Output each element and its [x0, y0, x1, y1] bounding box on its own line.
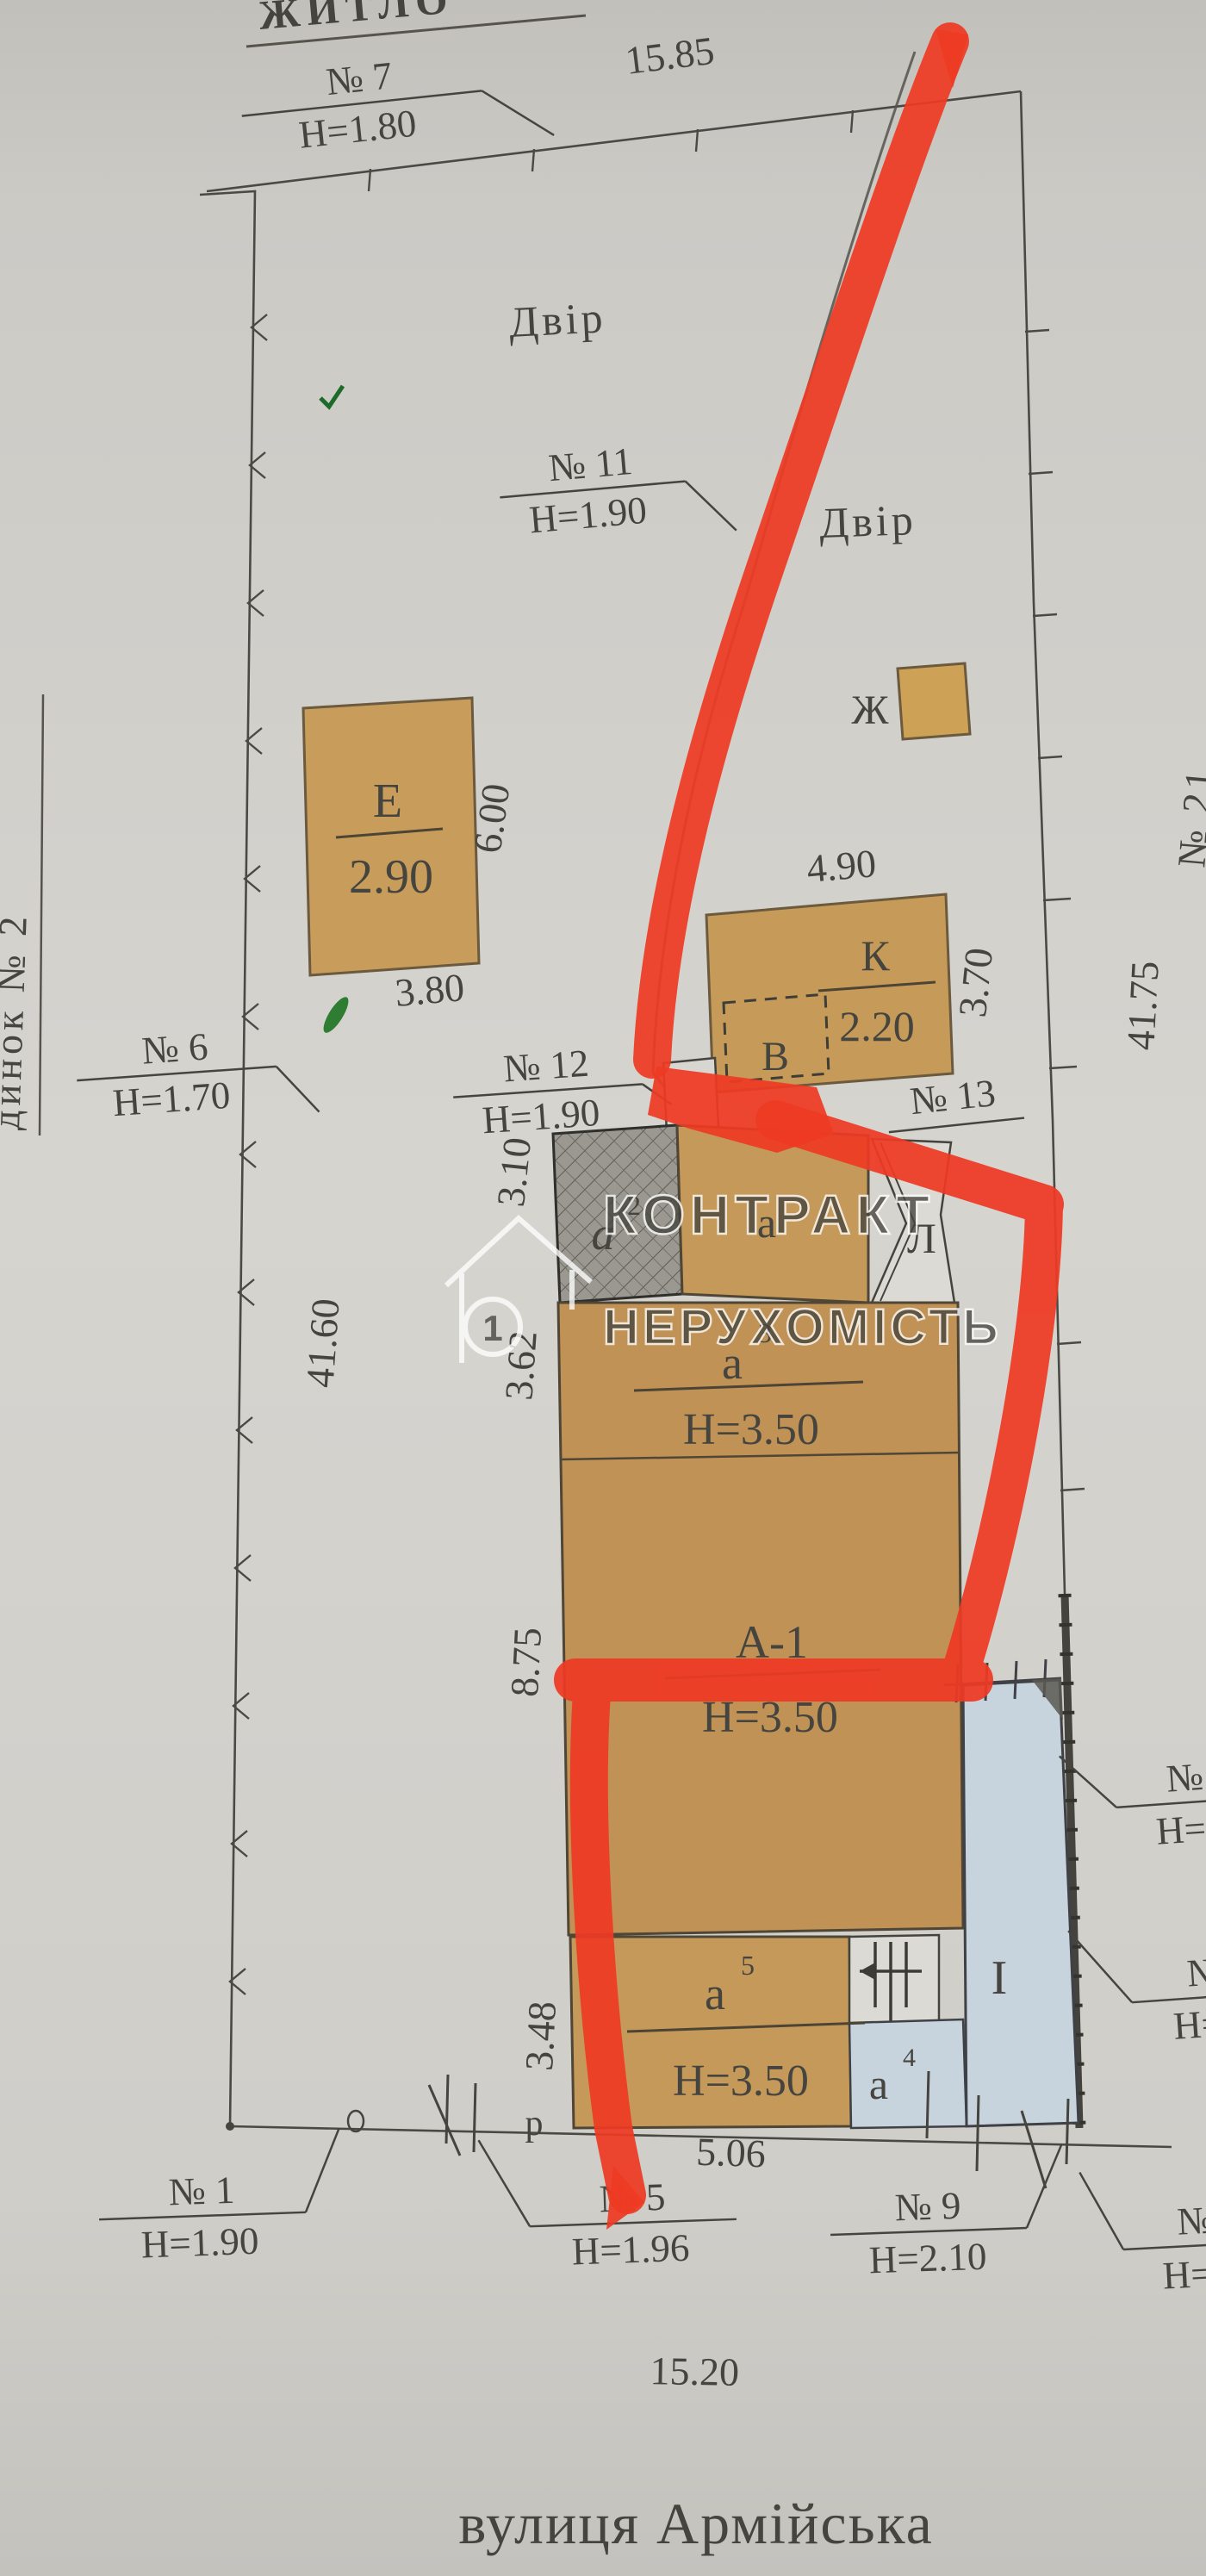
label-a5-base: а [705, 1968, 725, 2019]
label-e-value: 2.90 [349, 850, 433, 904]
dim-k-depth: 3.70 [950, 946, 1001, 1019]
fence-12-number: № 12 [502, 1042, 590, 1091]
fence-right-upper-number: № [1165, 1755, 1204, 1801]
dim-a5-depth: 3.48 [517, 2000, 564, 2072]
dim-a3-depth: 3.62 [496, 1329, 544, 1402]
fence-7-number: № 7 [324, 53, 394, 103]
label-a3-height: Н=3.50 [683, 1405, 819, 1454]
label-k-value: 2.20 [839, 1002, 915, 1050]
fence-right-upper-height: Н= [1154, 1807, 1206, 1853]
fence-11-number: № 11 [547, 439, 635, 489]
dim-right-length: 41.75 [1118, 960, 1166, 1051]
label-e: Е [373, 775, 402, 828]
watermark-line1: КОНТРАКТ [603, 1184, 935, 1246]
fence-right-mid-number: № [1185, 1950, 1206, 1995]
dim-left-length: 41.60 [297, 1297, 347, 1390]
site-plan-drawing: ЖИТЛО динок № 2 № 21 Двір Двір № 7 Н=1.8… [0, 0, 1206, 2576]
fence-5-height: Н=1.96 [571, 2226, 690, 2274]
building-a4 [849, 2019, 967, 2128]
dim-a1-depth: 8.75 [502, 1627, 550, 1698]
label-i: І [992, 1951, 1008, 2005]
building-zh [898, 663, 970, 739]
dim-e-width: 3.80 [393, 965, 466, 1015]
fence-right-mid-height: Н= [1172, 2001, 1206, 2048]
fence-6-height: Н=1.70 [111, 1073, 232, 1124]
building-k [706, 894, 953, 1092]
corner-point [226, 2122, 234, 2131]
label-k: К [861, 931, 890, 980]
building-i [963, 1680, 1079, 2126]
fence-9-height: Н=2.10 [868, 2235, 987, 2282]
dim-a5-width: 5.06 [695, 2130, 766, 2176]
entry-notch [849, 1935, 939, 2025]
fence-right-lower-height: Н=2 [1161, 2251, 1206, 2298]
fence-1-height: Н=1.90 [140, 2219, 259, 2267]
courtyard-label-upper: Двір [507, 293, 606, 346]
building-e [303, 698, 479, 975]
fence-12-height: Н=1.90 [481, 1091, 601, 1142]
fence-13-number: № 13 [908, 1071, 998, 1123]
courtyard-label-lower: Двір [818, 495, 917, 547]
label-a4-sup: 4 [903, 2044, 916, 2072]
fence-6-number: № 6 [140, 1024, 209, 1072]
label-a5-sup: 5 [741, 1950, 755, 1981]
label-a4-base: а [869, 2060, 888, 2108]
street-name: вулиця Армійська [458, 2491, 934, 2556]
fence-1-number: № 1 [168, 2168, 235, 2214]
dim-k-width: 4.90 [805, 841, 878, 891]
fence-right-lower-number: № [1176, 2199, 1206, 2243]
watermark-line2: НЕРУХОМІСТЬ [603, 1299, 1002, 1355]
scanned-plan-photo: ЖИТЛО динок № 2 № 21 Двір Двір № 7 Н=1.8… [0, 0, 1206, 2576]
dim-street-width: 15.20 [650, 2349, 739, 2394]
label-zh: Ж [851, 688, 889, 733]
watermark-badge: 1 [482, 1308, 502, 1348]
label-a5-height: Н=3.50 [673, 2056, 809, 2106]
label-v: В [762, 1034, 789, 1080]
dim-a2-depth: 3.10 [488, 1136, 539, 1209]
fence-9-number: № 9 [894, 2184, 961, 2230]
label-gate: р [525, 2104, 544, 2144]
